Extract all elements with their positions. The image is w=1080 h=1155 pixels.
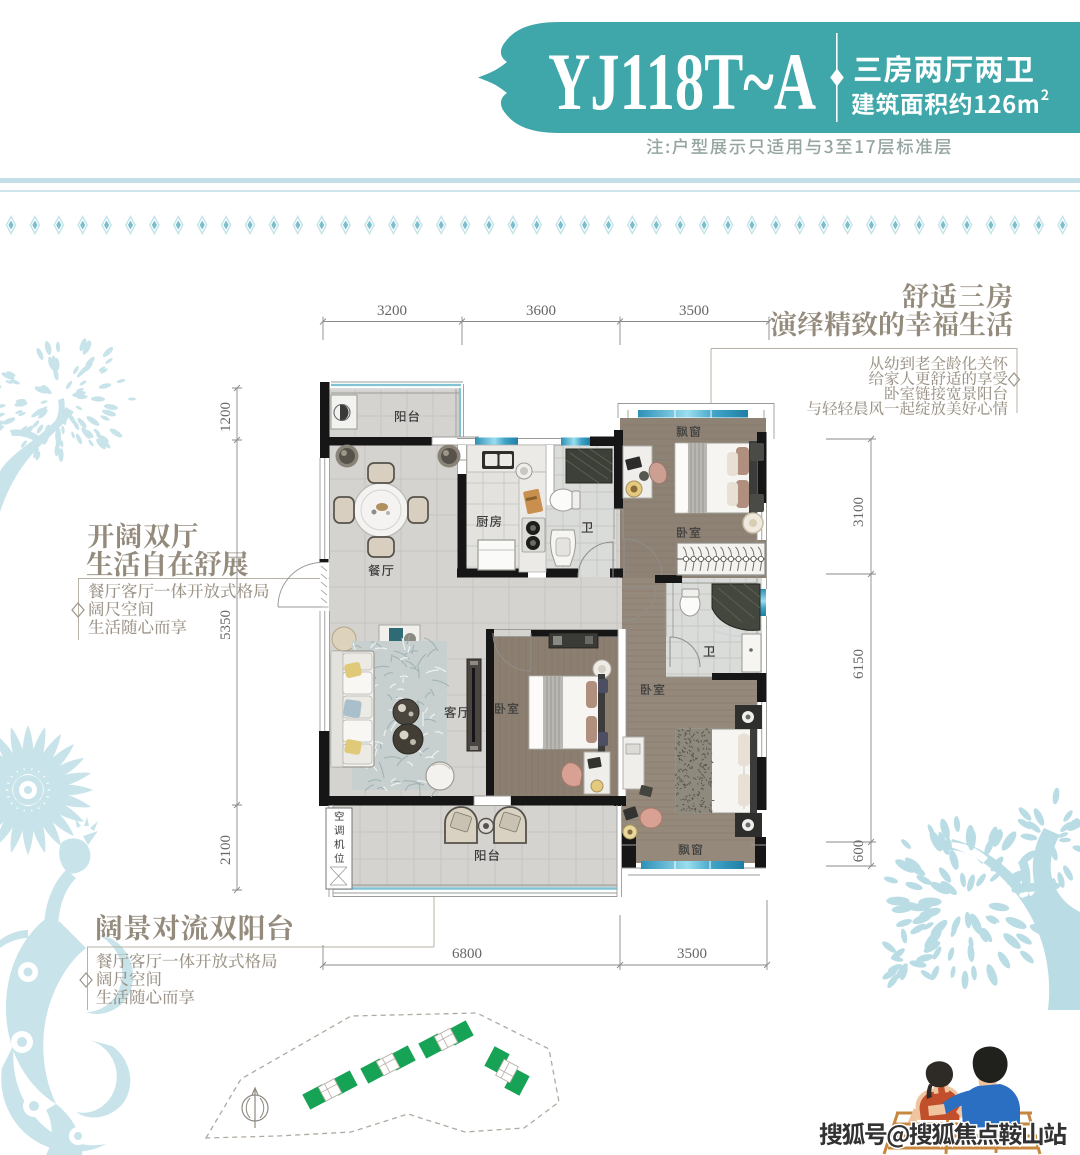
svg-text:3100: 3100 <box>851 497 867 527</box>
svg-text:6150: 6150 <box>851 649 867 679</box>
svg-text:3500: 3500 <box>677 946 707 962</box>
svg-text:3600: 3600 <box>526 303 556 319</box>
svg-text:3200: 3200 <box>377 303 407 319</box>
svg-text:5350: 5350 <box>218 610 234 640</box>
svg-text:2100: 2100 <box>218 835 234 865</box>
svg-text:1200: 1200 <box>218 402 234 432</box>
svg-text:YJ118T~A: YJ118T~A <box>548 36 816 127</box>
svg-text:3500: 3500 <box>679 303 709 319</box>
svg-text:6800: 6800 <box>452 946 482 962</box>
svg-text:600: 600 <box>851 840 867 863</box>
